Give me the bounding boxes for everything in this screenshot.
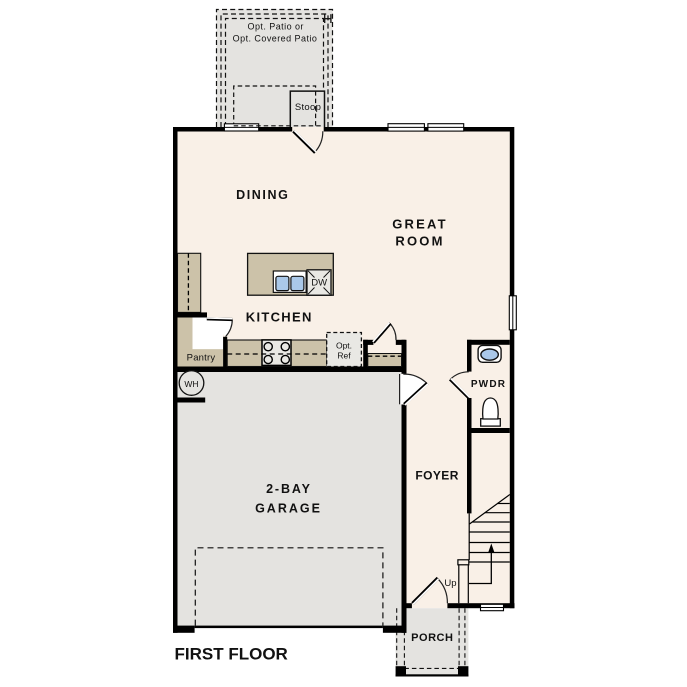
svg-text:KITCHEN: KITCHEN	[246, 310, 313, 325]
svg-text:DW: DW	[311, 278, 327, 289]
svg-text:Opt. Patio or: Opt. Patio or	[248, 22, 304, 32]
svg-text:Stoop: Stoop	[295, 102, 321, 113]
svg-text:GREAT: GREAT	[392, 216, 448, 231]
svg-text:2-BAY: 2-BAY	[266, 482, 312, 496]
svg-text:GARAGE: GARAGE	[255, 502, 322, 516]
svg-text:Up: Up	[444, 578, 456, 589]
svg-text:PORCH: PORCH	[411, 632, 453, 644]
svg-text:Opt. Covered Patio: Opt. Covered Patio	[233, 34, 318, 44]
svg-text:PWDR: PWDR	[471, 379, 506, 390]
svg-text:WH: WH	[184, 379, 198, 389]
svg-text:DINING: DINING	[236, 188, 289, 202]
svg-text:FOYER: FOYER	[415, 468, 458, 482]
svg-text:Ref: Ref	[337, 351, 351, 361]
svg-text:Pantry: Pantry	[187, 353, 216, 364]
svg-text:Opt.: Opt.	[336, 340, 352, 350]
svg-text:ROOM: ROOM	[395, 234, 444, 249]
svg-text:FIRST FLOOR: FIRST FLOOR	[175, 644, 288, 663]
